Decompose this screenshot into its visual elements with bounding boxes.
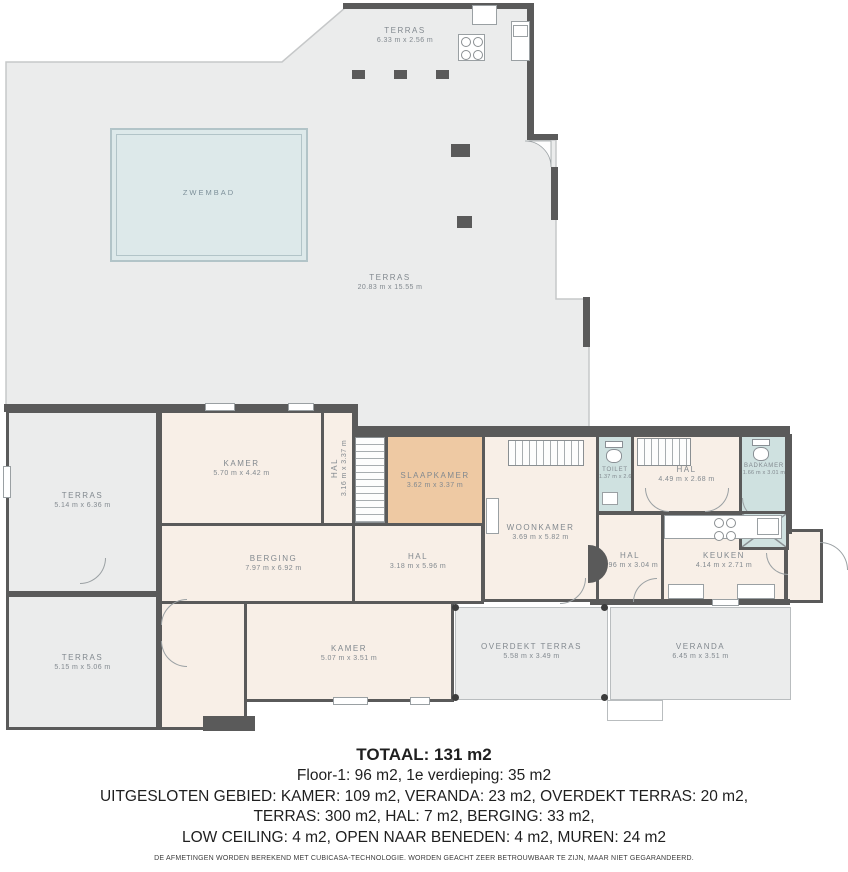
room-name: TERRAS [9, 491, 156, 500]
room-name: HAL [355, 552, 481, 561]
room-name: HAL [599, 551, 661, 560]
toilet-icon [605, 441, 623, 463]
room-kamer-lower: KAMER 5.07 m x 3.51 m [244, 601, 454, 702]
floors-line: Floor-1: 96 m2, 1e verdieping: 35 m2 [0, 766, 848, 787]
excluded-line-2: TERRAS: 300 m2, HAL: 7 m2, BERGING: 33 m… [0, 807, 848, 828]
room-name: ZWEMBAD [112, 188, 306, 197]
stairs-icon [508, 440, 584, 466]
room-dims: 3.62 m x 3.37 m [388, 482, 482, 489]
room-overdekt-terras: OVERDEKT TERRAS 5.58 m x 3.49 m [455, 607, 608, 700]
room-dims: 3.18 m x 5.96 m [355, 563, 481, 570]
room-dims: 5.07 m x 3.51 m [247, 655, 451, 662]
window [288, 403, 314, 411]
veranda-step [607, 700, 663, 721]
excluded-line-3: LOW CEILING: 4 m2, OPEN NAAR BENEDEN: 4 … [0, 828, 848, 849]
room-name: WOONKAMER [485, 523, 596, 532]
cabinet-icon [737, 584, 775, 599]
toilet-icon [752, 439, 770, 461]
sink-icon [602, 492, 618, 505]
room-name: KAMER [247, 644, 451, 653]
room-hal-centraal: HAL 3.18 m x 5.96 m [352, 523, 484, 604]
room-name: OVERDEKT TERRAS [456, 642, 607, 651]
room-name: TOILET [599, 467, 631, 473]
post-marker [452, 694, 459, 701]
wall [590, 599, 790, 605]
room-dims: 3.16 m x 3.37 m [341, 423, 348, 513]
room-dims: 4.14 m x 2.71 m [664, 562, 784, 569]
room-kamer-upper: KAMER 5.70 m x 4.42 m [159, 410, 324, 526]
stove-burners-icon [461, 37, 482, 60]
room-dims: 4.49 m x 2.68 m [634, 476, 739, 483]
excluded-line-1: UITGESLOTEN GEBIED: KAMER: 109 m2, VERAN… [0, 787, 848, 808]
room-dims: 1.37 m x 2.68 m [599, 474, 631, 480]
room-dims: 3.69 m x 5.82 m [485, 534, 596, 541]
room-dims: 5.58 m x 3.49 m [456, 653, 607, 660]
room-dims: 1.66 m x 3.01 m [742, 470, 786, 476]
room-name: VERANDA [611, 642, 790, 651]
window [3, 466, 11, 498]
room-dims: 5.70 m x 4.42 m [162, 470, 321, 477]
room-name: HAL [634, 465, 739, 474]
sofa-icon [486, 498, 499, 534]
post-marker [452, 604, 459, 611]
room-dims: 5.15 m x 5.06 m [9, 664, 156, 671]
room-name: TERRAS [9, 653, 156, 662]
floor-plan: TERRAS 6.33 m x 2.56 m ZWEMBAD TERRAS 20… [0, 0, 848, 872]
disclaimer: DE AFMETINGEN WORDEN BEREKEND MET CUBICA… [0, 855, 848, 862]
stairs-icon [637, 438, 691, 466]
room-hal-stairs: HAL 3.16 m x 3.37 m [321, 410, 355, 526]
room-name: KAMER [162, 459, 321, 468]
hood-icon [472, 5, 497, 25]
post-marker [601, 604, 608, 611]
wall [203, 716, 255, 731]
stairs-icon [355, 437, 385, 523]
room-zwembad: ZWEMBAD [110, 128, 308, 262]
room-dims: 5.14 m x 6.36 m [9, 502, 156, 509]
room-dims: 6.45 m x 3.51 m [611, 653, 790, 660]
area-summary: TOTAAL: 131 m2 Floor-1: 96 m2, 1e verdie… [0, 744, 848, 862]
room-name: HAL [330, 423, 339, 513]
window [333, 697, 368, 705]
window [410, 697, 430, 705]
entry-alcove [785, 529, 823, 603]
sink-icon [757, 518, 779, 535]
window [205, 403, 235, 411]
sink-icon [513, 25, 528, 37]
stove-icon [714, 518, 735, 541]
window [712, 599, 739, 606]
total-area: TOTAAL: 131 m2 [0, 744, 848, 766]
room-name: SLAAPKAMER [388, 471, 482, 480]
room-slaapkamer: SLAAPKAMER 3.62 m x 3.37 m [385, 434, 485, 526]
room-veranda: VERANDA 6.45 m x 3.51 m [610, 607, 791, 700]
room-terras-left-lower: TERRAS 5.15 m x 5.06 m [6, 594, 159, 730]
cabinet-icon [668, 584, 704, 599]
room-dims: 2.96 m x 3.04 m [599, 562, 661, 569]
room-name: BADKAMER [742, 463, 786, 469]
